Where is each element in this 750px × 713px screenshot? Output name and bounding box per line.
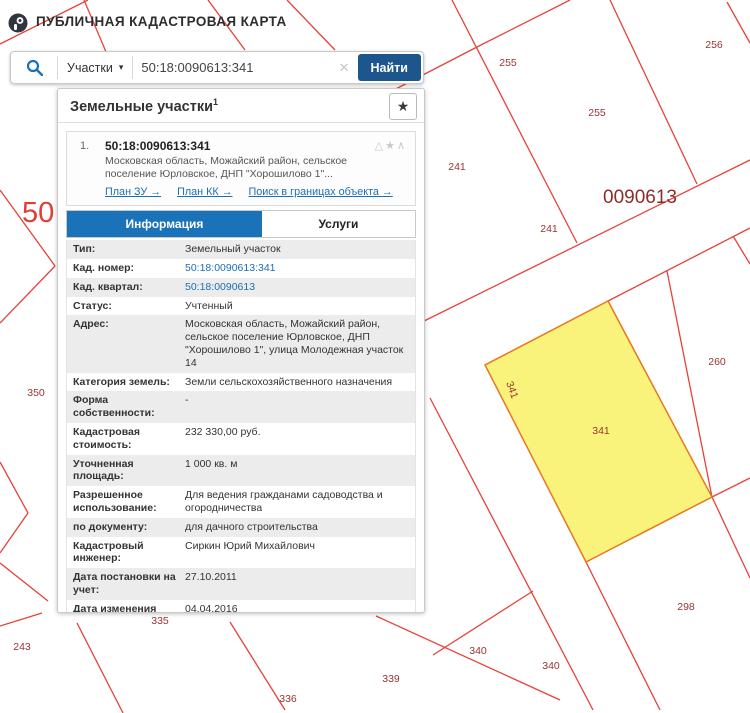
parcel-label: 298 — [677, 601, 695, 613]
star-icon: ★ — [397, 98, 410, 115]
info-table: Тип: Земельный участок Кад. номер: 50:18… — [66, 240, 416, 613]
cad-quarter-link[interactable]: 50:18:0090613 — [185, 281, 409, 294]
parcel-label: 241 — [448, 161, 466, 173]
quarter-label: 0090613 — [603, 187, 677, 208]
parcel-label: 243 — [13, 641, 31, 653]
result-card-icons[interactable]: △★∧ — [375, 139, 407, 152]
results-panel: Земельные участки1 ★ 1. 50:18:0090613:34… — [57, 88, 425, 613]
search-bar: Участки ▾ ✕ Найти — [10, 51, 424, 84]
info-row-gkn-change-date: Дата изменения сведений в ГКН: 04.04.201… — [67, 600, 415, 613]
info-row-cad-quarter: Кад. квартал: 50:18:0090613 — [67, 278, 415, 297]
info-row-cad-number: Кад. номер: 50:18:0090613:341 — [67, 259, 415, 278]
result-card[interactable]: 1. 50:18:0090613:341 △★∧ Московская обла… — [66, 131, 416, 206]
search-in-bounds-link[interactable]: Поиск в границах объекта → — [249, 186, 393, 198]
result-cad-number: 50:18:0090613:341 — [105, 139, 407, 153]
result-links: План ЗУ → План КК → Поиск в границах объ… — [105, 186, 407, 198]
info-row-cadastral-engineer: Кадастровый инженер: Сиркин Юрий Михайло… — [67, 537, 415, 569]
info-row-registration-date: Дата постановки на учет: 27.10.2011 — [67, 568, 415, 600]
info-row-by-document: по документу: для дачного строительства — [67, 518, 415, 537]
favorites-star-button[interactable]: ★ — [389, 93, 417, 120]
parcel-label: 340 — [542, 660, 560, 672]
panel-title: Земельные участки1 — [70, 97, 218, 115]
parcel-label: 255 — [499, 57, 517, 69]
search-category-dropdown[interactable]: Участки ▾ — [58, 61, 132, 75]
search-category-label: Участки — [67, 61, 113, 75]
result-index: 1. — [80, 140, 89, 152]
info-row-cadastral-value: Кадастровая стоимость: 232 330,00 руб. — [67, 423, 415, 455]
search-icon[interactable] — [11, 59, 57, 76]
cad-number-link[interactable]: 50:18:0090613:341 — [185, 262, 409, 275]
district-label: 50 — [22, 197, 54, 229]
info-row-refined-area: Уточненная площадь: 1 000 кв. м — [67, 455, 415, 487]
parcel-label: 260 — [708, 356, 726, 368]
plan-kk-link[interactable]: План КК → — [177, 186, 232, 198]
clear-search-icon[interactable]: ✕ — [331, 60, 358, 76]
info-row-permitted-use: Разрешенное использование: Для ведения г… — [67, 486, 415, 518]
parcel-label: 336 — [279, 693, 297, 705]
parcel-label: 339 — [382, 673, 400, 685]
panel-header: Земельные участки1 ★ — [58, 89, 424, 123]
parcel-label: 255 — [588, 107, 606, 119]
parcel-label: 340 — [469, 645, 487, 657]
find-button[interactable]: Найти — [358, 54, 421, 81]
info-row-ownership-form: Форма собственности: - — [67, 391, 415, 423]
parcel-label: 335 — [151, 615, 169, 627]
selected-parcel-label: 341 — [592, 425, 610, 437]
chevron-down-icon: ▾ — [119, 62, 124, 73]
tab-information[interactable]: Информация — [67, 211, 262, 237]
info-row-address: Адрес: Московская область, Можайский рай… — [67, 315, 415, 372]
tabs: Информация Услуги — [66, 210, 416, 238]
info-row-status: Статус: Учтенный — [67, 297, 415, 316]
pkk-logo-icon — [8, 13, 28, 33]
plan-zu-link[interactable]: План ЗУ → — [105, 186, 161, 198]
info-row-type: Тип: Земельный участок — [67, 240, 415, 259]
result-address: Московская область, Можайский район, сел… — [105, 155, 390, 181]
app-title: ПУБЛИЧНАЯ КАДАСТРОВАЯ КАРТА — [36, 14, 287, 29]
app-header: ПУБЛИЧНАЯ КАДАСТРОВАЯ КАРТА — [0, 0, 750, 44]
search-input[interactable] — [133, 60, 330, 75]
parcel-label: 241 — [540, 223, 558, 235]
info-row-land-category: Категория земель: Земли сельскохозяйстве… — [67, 373, 415, 392]
results-count: 1 — [213, 97, 218, 107]
tab-services[interactable]: Услуги — [262, 211, 415, 237]
parcel-label: 350 — [27, 387, 45, 399]
